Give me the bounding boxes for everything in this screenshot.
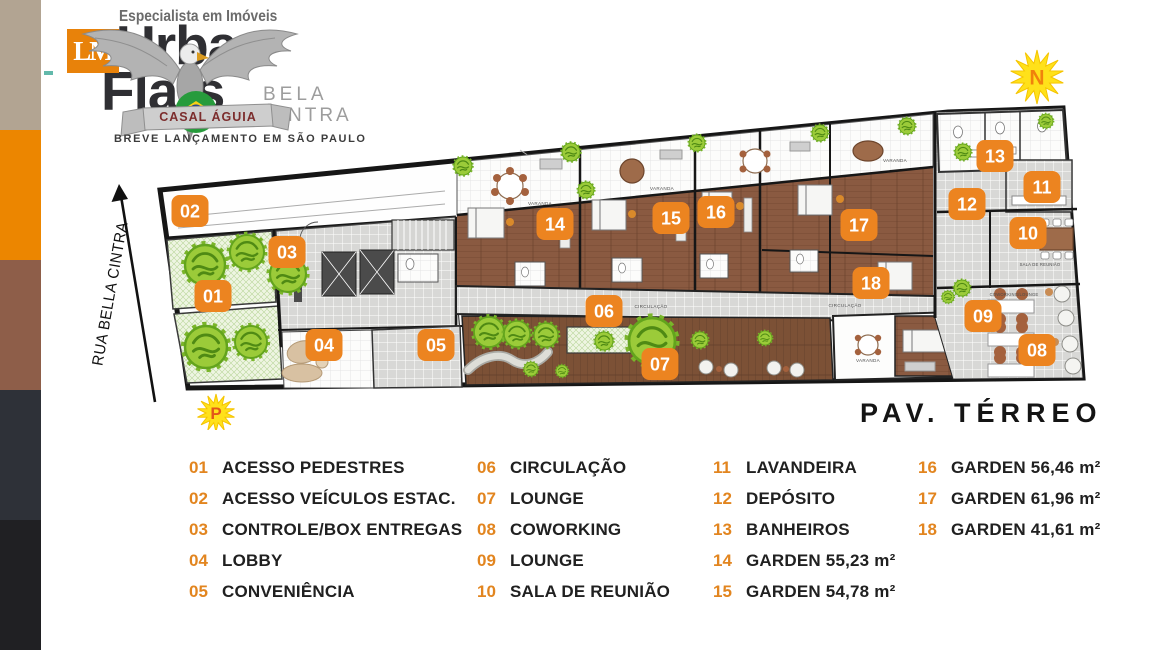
svg-text:11: 11 [1032, 178, 1051, 198]
legend-item-number: 09 [477, 551, 503, 571]
small-teal-mark [44, 71, 53, 75]
label-varanda: VARANDA [528, 201, 553, 206]
legend-item-label: GARDEN 61,96 m² [951, 489, 1100, 509]
legend-item-label: GARDEN 41,61 m² [951, 520, 1100, 540]
legend-item-label: LOUNGE [510, 551, 584, 571]
svg-text:13: 13 [985, 147, 1005, 167]
plan-badge-11: 11 [1024, 171, 1061, 203]
plan-badge-17: 17 [841, 209, 878, 241]
svg-text:05: 05 [426, 336, 446, 356]
svg-text:12: 12 [957, 195, 977, 215]
plan-badge-09: 09 [965, 300, 1002, 332]
legend-item-14: 14GARDEN 55,23 m² [713, 551, 895, 569]
svg-text:15: 15 [661, 209, 681, 229]
legend-item-label: DEPÓSITO [746, 489, 835, 509]
legend-item-07: 07LOUNGE [477, 489, 670, 507]
plan-badge-13: 13 [977, 140, 1014, 172]
plan-badge-02: 02 [172, 195, 209, 227]
plan-badge-06: 06 [586, 295, 623, 327]
flyer-canvas: Especialista em Imóveis Urban Flats LM B… [0, 0, 1156, 650]
legend-item-16: 16GARDEN 56,46 m² [918, 458, 1100, 476]
north-letter: N [1029, 67, 1044, 90]
legend-item-number: 17 [918, 489, 944, 509]
legend-item-label: CIRCULAÇÃO [510, 458, 626, 478]
legend-item-label: SALA DE REUNIÃO [510, 582, 670, 602]
legend-item-label: COWORKING [510, 520, 621, 540]
legend-item-number: 15 [713, 582, 739, 602]
north-compass: N [1011, 50, 1064, 104]
legend-item-number: 18 [918, 520, 944, 540]
plan-badge-07: 07 [642, 348, 679, 380]
legend-column-4: 16GARDEN 56,46 m²17GARDEN 61,96 m²18GARD… [918, 458, 1100, 551]
svg-text:17: 17 [849, 216, 869, 236]
legend-item-label: GARDEN 54,78 m² [746, 582, 895, 602]
legend-item-label: ACESSO PEDESTRES [222, 458, 405, 478]
svg-text:16: 16 [706, 203, 726, 223]
color-swatch-2 [0, 130, 41, 260]
legend-item-label: LAVANDEIRA [746, 458, 857, 478]
legend-item-number: 02 [189, 489, 215, 509]
legend-item-label: BANHEIROS [746, 520, 850, 540]
legend-item-number: 03 [189, 520, 215, 540]
legend-item-label: CONTROLE/BOX ENTREGAS [222, 520, 462, 540]
stairs [392, 220, 454, 250]
svg-text:06: 06 [594, 302, 614, 322]
legend: 01ACESSO PEDESTRES02ACESSO VEÍCULOS ESTA… [0, 458, 1156, 628]
plan-badge-14: 14 [537, 208, 574, 240]
color-swatch-1 [0, 0, 41, 130]
legend-item-01: 01ACESSO PEDESTRES [189, 458, 462, 476]
legend-item-number: 14 [713, 551, 739, 571]
plan-badge-05: 05 [418, 329, 455, 361]
plan-badge-03: 03 [269, 236, 306, 268]
plan-badge-08: 08 [1019, 334, 1056, 366]
plan-badge-10: 10 [1010, 217, 1047, 249]
legend-item-label: GARDEN 55,23 m² [746, 551, 895, 571]
legend-item-number: 06 [477, 458, 503, 478]
label-circulacao: CIRCULAÇÃO [828, 302, 861, 308]
label-circulacao: CIRCULAÇÃO [634, 303, 667, 309]
legend-item-number: 12 [713, 489, 739, 509]
legend-item-03: 03CONTROLE/BOX ENTREGAS [189, 520, 462, 538]
legend-item-number: 08 [477, 520, 503, 540]
svg-text:03: 03 [277, 243, 297, 263]
color-swatch-3 [0, 260, 41, 390]
svg-text:08: 08 [1027, 341, 1047, 361]
legend-item-12: 12DEPÓSITO [713, 489, 895, 507]
label-varanda: VARANDA [883, 158, 908, 163]
legend-item-05: 05CONVENIÊNCIA [189, 582, 462, 600]
legend-item-18: 18GARDEN 41,61 m² [918, 520, 1100, 538]
legend-item-label: LOBBY [222, 551, 283, 571]
svg-text:04: 04 [314, 336, 334, 356]
legend-item-number: 07 [477, 489, 503, 509]
sun-west-marker: P [198, 394, 235, 430]
label-varanda: VARANDA [856, 358, 881, 363]
floor-title: PAV. TÉRREO [860, 398, 1103, 429]
legend-column-1: 01ACESSO PEDESTRES02ACESSO VEÍCULOS ESTA… [189, 458, 462, 613]
svg-text:10: 10 [1018, 224, 1038, 244]
legend-item-label: ACESSO VEÍCULOS ESTAC. [222, 489, 456, 509]
svg-text:18: 18 [861, 274, 881, 294]
plan-badge-12: 12 [949, 188, 986, 220]
legend-column-2: 06CIRCULAÇÃO07LOUNGE08COWORKING09LOUNGE1… [477, 458, 670, 613]
legend-item-08: 08COWORKING [477, 520, 670, 538]
label-coworking: COWORKING/LOUNGE [990, 292, 1039, 297]
label-varanda: VARANDA [650, 186, 675, 191]
svg-text:01: 01 [203, 287, 223, 307]
legend-item-label: LOUNGE [510, 489, 584, 509]
legend-item-number: 05 [189, 582, 215, 602]
lm-monogram-letters: LM [73, 36, 113, 67]
legend-item-number: 01 [189, 458, 215, 478]
legend-item-number: 13 [713, 520, 739, 540]
svg-text:02: 02 [180, 202, 200, 222]
legend-item-15: 15GARDEN 54,78 m² [713, 582, 895, 600]
legend-item-02: 02ACESSO VEÍCULOS ESTAC. [189, 489, 462, 507]
legend-column-3: 11LAVANDEIRA12DEPÓSITO13BANHEIROS14GARDE… [713, 458, 895, 613]
legend-item-09: 09LOUNGE [477, 551, 670, 569]
plan-badge-04: 04 [306, 329, 343, 361]
plan-badge-18: 18 [853, 267, 890, 299]
plan-badge-01: 01 [195, 280, 232, 312]
label-sala-reuniao: SALA DE REUNIÃO [1020, 262, 1061, 267]
legend-item-11: 11LAVANDEIRA [713, 458, 895, 476]
legend-item-number: 16 [918, 458, 944, 478]
legend-item-label: CONVENIÊNCIA [222, 582, 355, 602]
plan-badge-15: 15 [653, 202, 690, 234]
legend-item-17: 17GARDEN 61,96 m² [918, 489, 1100, 507]
legend-item-number: 10 [477, 582, 503, 602]
plan-badge-16: 16 [698, 196, 735, 228]
legend-item-number: 11 [713, 458, 739, 478]
legend-item-04: 04LOBBY [189, 551, 462, 569]
legend-item-label: GARDEN 56,46 m² [951, 458, 1100, 478]
floor-plan: CIRCULAÇÃO CIRCULAÇÃO VARANDA VARANDA VA… [145, 40, 1110, 430]
legend-item-10: 10SALA DE REUNIÃO [477, 582, 670, 600]
legend-item-13: 13BANHEIROS [713, 520, 895, 538]
svg-text:09: 09 [973, 307, 993, 327]
legend-item-number: 04 [189, 551, 215, 571]
lm-monogram-logo: LM [67, 29, 119, 73]
sun-letter: P [210, 404, 221, 423]
legend-item-06: 06CIRCULAÇÃO [477, 458, 670, 476]
svg-text:07: 07 [650, 355, 670, 375]
svg-text:14: 14 [545, 215, 565, 235]
wc-room [398, 254, 438, 282]
